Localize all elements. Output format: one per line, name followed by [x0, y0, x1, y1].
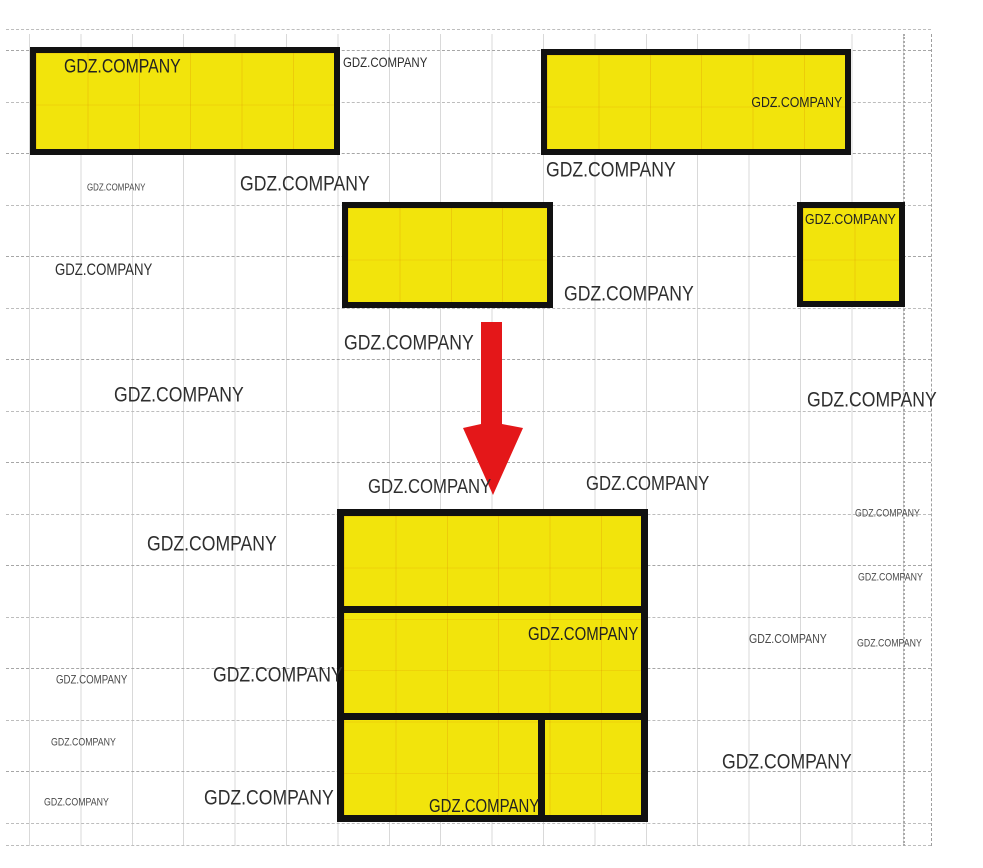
grid-line [6, 823, 931, 824]
grid-ruler-line [931, 34, 932, 846]
divider-row2-row3 [344, 713, 641, 720]
watermark-text: GDZ.COMPANY [807, 388, 937, 412]
watermark-text: GDZ.COMPANY [749, 632, 827, 646]
divider-row1-row2 [344, 606, 641, 613]
grid-ruler-line [903, 34, 905, 846]
watermark-label: GDZ.COMPANY [64, 55, 181, 78]
grid-line [6, 845, 931, 846]
piece-rect-top-left: GDZ.COMPANY [30, 47, 340, 155]
watermark-label: GDZ.COMPANY [429, 796, 539, 818]
watermark-text: GDZ.COMPANY [87, 183, 145, 194]
watermark-text: GDZ.COMPANY [586, 474, 709, 497]
watermark-text: GDZ.COMPANY [564, 282, 694, 306]
watermark-text: GDZ.COMPANY [204, 786, 334, 810]
watermark-text: GDZ.COMPANY [855, 508, 920, 520]
grid-line [6, 29, 931, 30]
piece-rect-small-right: GDZ.COMPANY [797, 202, 905, 307]
watermark-text: GDZ.COMPANY [44, 797, 109, 809]
watermark-text: GDZ.COMPANY [114, 383, 244, 407]
watermark-text: GDZ.COMPANY [857, 638, 922, 650]
watermark-label: GDZ.COMPANY [528, 624, 638, 646]
piece-rect-middle [342, 202, 553, 308]
watermark-text: GDZ.COMPANY [368, 477, 491, 500]
watermark-text: GDZ.COMPANY [344, 331, 474, 355]
watermark-text: GDZ.COMPANY [56, 674, 127, 687]
watermark-text: GDZ.COMPANY [858, 572, 923, 584]
piece-rect-top-right: GDZ.COMPANY [541, 49, 851, 155]
watermark-text: GDZ.COMPANY [147, 532, 277, 556]
watermark-text: GDZ.COMPANY [343, 55, 427, 70]
watermark-text: GDZ.COMPANY [213, 663, 343, 687]
watermark-text: GDZ.COMPANY [240, 172, 370, 196]
watermark-text: GDZ.COMPANY [51, 737, 116, 749]
watermark-label: GDZ.COMPANY [805, 210, 896, 227]
watermark-text: GDZ.COMPANY [722, 750, 852, 774]
watermark-label: GDZ.COMPANY [751, 93, 842, 110]
diagram-canvas: GDZ.COMPANY GDZ.COMPANY GDZ.COMPANY GDZ.… [0, 0, 983, 868]
watermark-text: GDZ.COMPANY [546, 158, 676, 182]
result-combined-rect: GDZ.COMPANY GDZ.COMPANY [337, 509, 648, 822]
watermark-text: GDZ.COMPANY [55, 262, 152, 280]
